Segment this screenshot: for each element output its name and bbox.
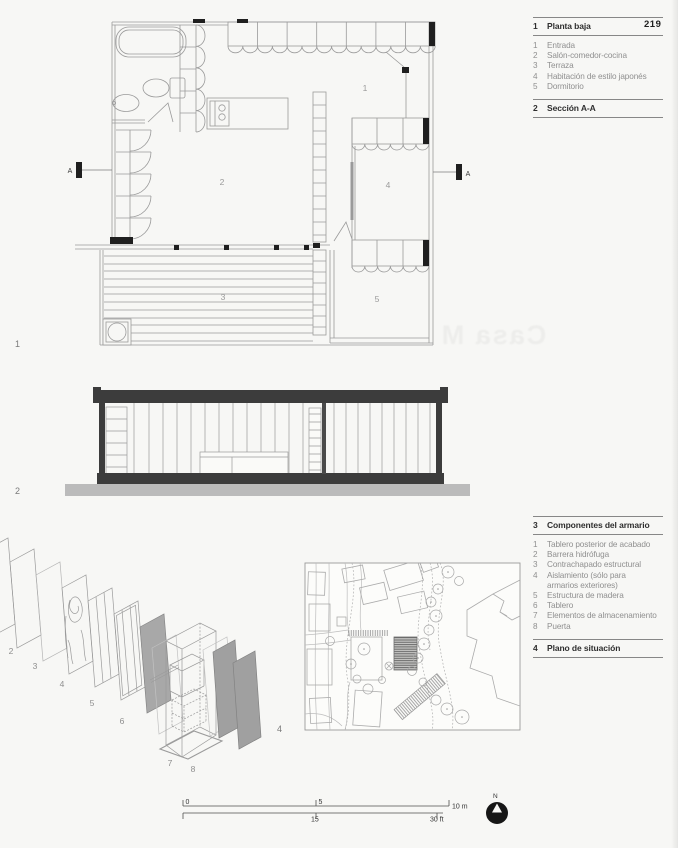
legend-column-top: 1 Planta baja 1Entrada 2Salón-comedor-co…	[533, 17, 663, 118]
axon-label-5: 5	[90, 698, 95, 708]
legend-item: 7Elementos de almacenamiento	[533, 611, 663, 621]
legend-componentes-items: 1Tablero posterior de acabado 2Barrera h…	[533, 535, 663, 639]
page-edge-shadow	[671, 0, 678, 848]
north-arrow: N	[486, 793, 508, 824]
axon-label-6: 6	[120, 716, 125, 726]
room-label-5: 5	[375, 294, 380, 304]
legend-item: 1Entrada	[533, 41, 663, 51]
legend-item: 5Dormitorio	[533, 82, 663, 92]
axon-label-2: 2	[9, 646, 14, 656]
section-marker-a-left: A	[68, 168, 73, 175]
legend-planta-baja-items: 1Entrada 2Salón-comedor-cocina 3Terraza …	[533, 36, 663, 99]
legend-item: 8Puerta	[533, 622, 663, 632]
legend-item: 2Salón-comedor-cocina	[533, 51, 663, 61]
legend-heading-number: 3	[533, 520, 547, 530]
legend-heading-plano-situacion: 4 Plano de situación	[533, 639, 663, 658]
floor-plan: 1 2 3 4 5 A A	[68, 19, 471, 345]
legend-heading-seccion: 2 Sección A-A	[533, 99, 663, 118]
site-house-footprint	[394, 637, 417, 670]
room-label-2: 2	[220, 177, 225, 187]
axon-label-8: 8	[191, 764, 196, 774]
cabinet-exploded-axon: 2 3 4 5 6 7 8	[0, 538, 261, 774]
legend-item: 6Tablero	[533, 601, 663, 611]
legend-heading-title: Planta baja	[547, 21, 591, 31]
legend-heading-componentes: 3 Componentes del armario	[533, 516, 663, 535]
legend-heading-title: Sección A-A	[547, 103, 596, 113]
legend-heading-title: Plano de situación	[547, 643, 620, 653]
book-page: Casa M	[0, 0, 678, 848]
scale-label-5: 5	[319, 799, 323, 806]
scale-label-15: 15	[311, 817, 319, 824]
scale-label-30ft: 30 ft	[430, 817, 444, 824]
section-drawing	[65, 387, 470, 496]
scale-bar: 0 5 10 m 15 30 ft	[183, 799, 468, 824]
room-label-1: 1	[363, 83, 368, 93]
legend-item: 3Contrachapado estructural	[533, 560, 663, 570]
legend-item: 4Aislamiento (sólo para	[533, 571, 663, 581]
axon-label-7: 7	[168, 758, 173, 768]
legend-heading-number: 4	[533, 643, 547, 653]
legend-heading-number: 2	[533, 103, 547, 113]
axon-label-4: 4	[60, 679, 65, 689]
legend-item: 3Terraza	[533, 61, 663, 71]
figure-number-section: 2	[15, 486, 20, 496]
room-label-3: 3	[221, 292, 226, 302]
legend-item: armarios exteriores)	[533, 581, 663, 591]
site-plan	[305, 557, 520, 730]
legend-heading-number: 1	[533, 21, 547, 31]
section-marker-a-right: A	[466, 171, 471, 178]
room-label-4: 4	[386, 180, 391, 190]
axon-label-3: 3	[33, 661, 38, 671]
figure-number-plan: 1	[15, 339, 20, 349]
legend-item: 1Tablero posterior de acabado	[533, 540, 663, 550]
scale-label-0: 0	[186, 799, 190, 806]
legend-item: 2Barrera hidrófuga	[533, 550, 663, 560]
legend-column-bottom: 3 Componentes del armario 1Tablero poste…	[533, 516, 663, 658]
legend-item: 4Habitación de estilo japonés	[533, 72, 663, 82]
drawings-layer: 1 2 3 4 5 A A	[0, 0, 678, 848]
scale-label-10m: 10 m	[452, 804, 468, 811]
north-label: N	[493, 793, 498, 800]
figure-number-site: 4	[277, 724, 282, 734]
legend-heading-title: Componentes del armario	[547, 520, 650, 530]
page-number: 219	[644, 19, 661, 30]
legend-item: 5Estructura de madera	[533, 591, 663, 601]
